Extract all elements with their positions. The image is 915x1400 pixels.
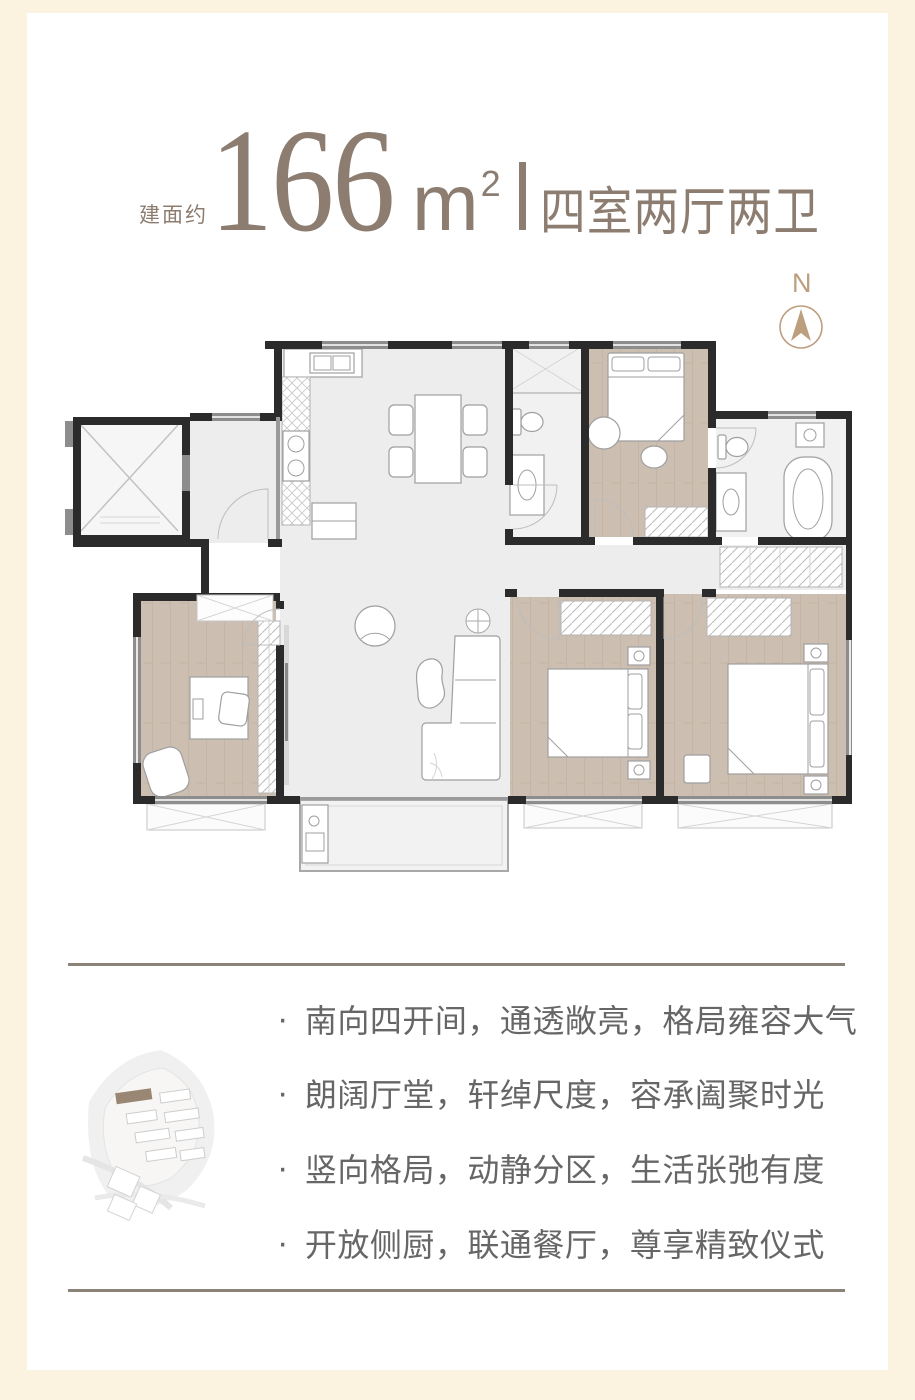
stove [283,431,309,481]
bedroom3-wardrobe [561,601,651,635]
toilet [512,409,521,435]
bathtub [784,457,832,541]
desk-chair [218,691,250,727]
feature-item: · 竖向格局，动静分区，生活张弛有度 [277,1146,825,1190]
feature-item: · 开放侧厨，联通餐厅，尊享精致仪式 [277,1221,825,1265]
foyer-floor [190,417,278,543]
nightstand [628,647,650,665]
tv [285,663,288,741]
dining-chair [389,447,413,477]
bullet-icon: · [277,1224,289,1263]
coffee-table [417,659,445,708]
bullet-icon: · [277,1000,289,1039]
area-unit: m [412,163,479,243]
feature-item: · 南向四开间，通透敞亮，格局雍容大气 [277,997,857,1041]
dining-chair [463,405,487,435]
bed [548,669,648,757]
balcony-utility [302,805,328,863]
floor-plan [62,333,852,893]
area-exponent: 2 [481,163,501,205]
balcony-and-bays [147,800,832,871]
master-dresser [707,598,791,636]
layout-label: 四室两厅两卫 [540,170,820,245]
bench [684,755,710,783]
master-closet [720,547,842,587]
site-map-thumbnail [75,1038,237,1224]
vanity-sink [716,473,746,531]
page-title: 建面约 166 m 2 四室两厅两卫 [139,107,858,255]
divider-top [68,963,845,966]
round-chair [588,417,620,449]
feature-text: 南向四开间，通透敞亮，格局雍容大气 [305,996,858,1042]
dining-table [415,395,461,483]
bullet-icon: · [277,1074,289,1113]
side-table [641,446,667,468]
nightstand [804,776,828,794]
toilet [718,435,726,459]
bedroom-3 [548,601,651,779]
bed [728,664,828,774]
dining-chair [389,405,413,435]
wash-basin [796,423,824,447]
balcony [300,800,508,871]
bedroom2-wardrobe [645,507,708,537]
flyer-card: 建面约 166 m 2 四室两厅两卫 N [27,13,888,1370]
area-prefix-label: 建面约 [139,199,208,229]
title-divider-bar [519,162,526,230]
bullet-icon: · [277,1149,289,1188]
feature-text: 朗阔厅堂，轩绰尺度，容承阖聚时光 [305,1070,825,1116]
nightstand [804,644,828,662]
area-number: 166 [210,107,394,255]
closet-corridor [720,547,842,587]
armchair [355,606,395,646]
compass-label: N [792,268,812,298]
feature-text: 开放侧厨，联通餐厅，尊享精致仪式 [305,1220,825,1266]
divider-bottom [68,1289,845,1292]
dining-chair [463,447,487,477]
feature-text: 竖向格局，动静分区，生活张弛有度 [305,1145,825,1191]
feature-item: · 朗阔厅堂，轩绰尺度，容承阖聚时光 [277,1071,825,1115]
nightstand [628,761,650,779]
